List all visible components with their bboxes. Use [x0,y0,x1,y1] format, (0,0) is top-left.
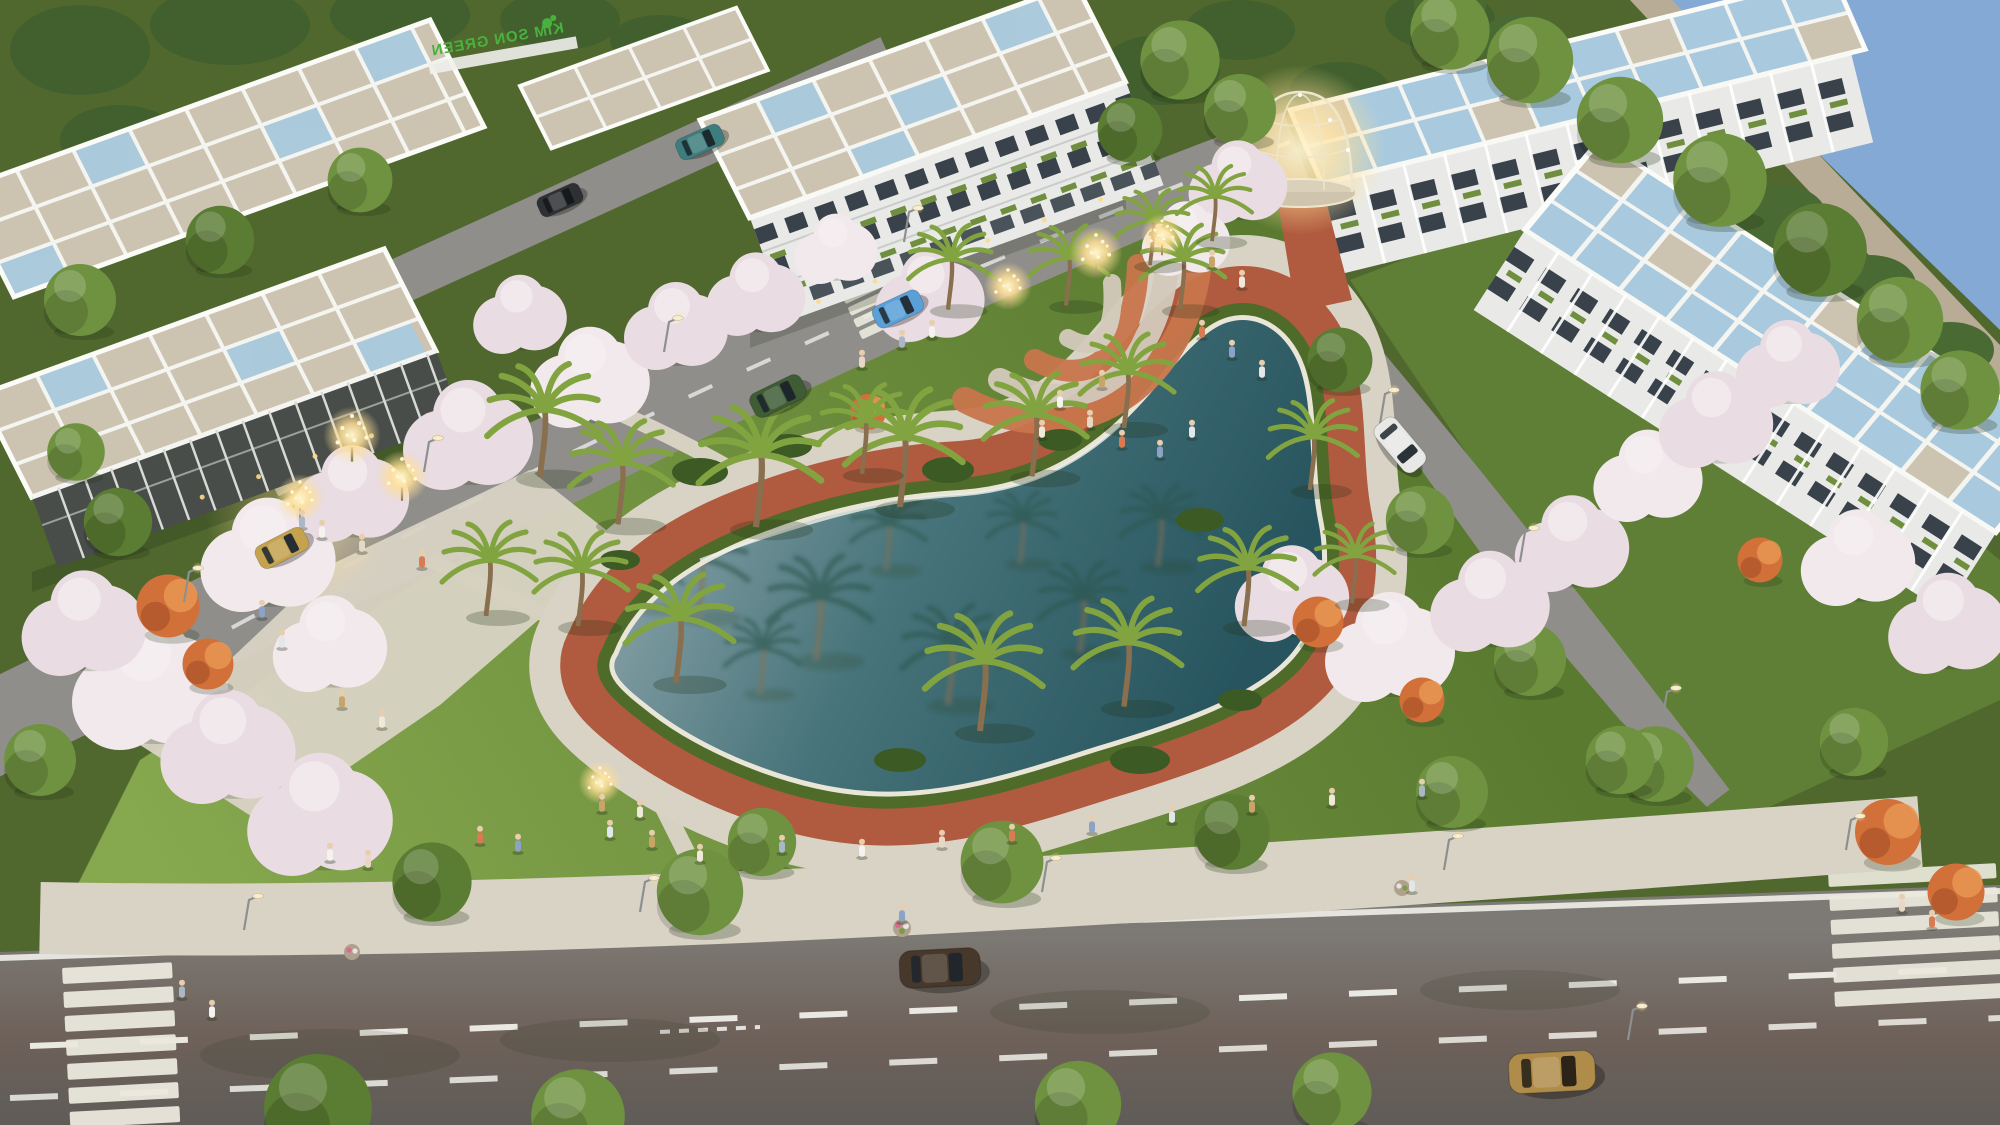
green-tree [1920,350,1999,434]
flame-tree [1738,538,1783,588]
green-tree [1577,77,1663,168]
green-tree [392,842,471,926]
light-sphere-tree [323,406,381,464]
green-tree [4,724,76,800]
green-tree [1204,74,1276,150]
green-tree [1773,203,1867,302]
light-sphere-tree [376,450,429,503]
green-tree [961,821,1044,908]
flame-tree [183,639,234,695]
light-sphere-tree [1070,226,1123,279]
green-tree [1673,133,1767,232]
green-tree [1194,794,1270,874]
scene-svg: KIM SON GREEN [0,0,2000,1125]
light-sphere-tree [984,262,1032,310]
green-tree [1098,98,1163,166]
green-tree [1308,328,1373,396]
green-tree [47,423,105,484]
green-tree [1487,17,1573,108]
flame-tree [1400,678,1445,728]
green-tree [84,488,152,560]
flame-tree [1855,799,1921,872]
green-tree [44,264,116,340]
green-tree [1410,0,1489,74]
green-tree [1140,20,1219,104]
green-tree [1386,486,1454,558]
green-tree [186,206,254,278]
green-tree [328,148,393,216]
green-tree [728,808,796,880]
green-tree [1857,277,1943,368]
green-tree [1416,756,1488,832]
green-tree [1820,708,1888,780]
green-tree [1586,726,1654,798]
flame-tree [137,575,200,644]
aerial-render-canvas: KIM SON GREEN [0,0,2000,1125]
light-sphere-tree [1140,214,1183,257]
flame-tree [1928,864,1985,927]
